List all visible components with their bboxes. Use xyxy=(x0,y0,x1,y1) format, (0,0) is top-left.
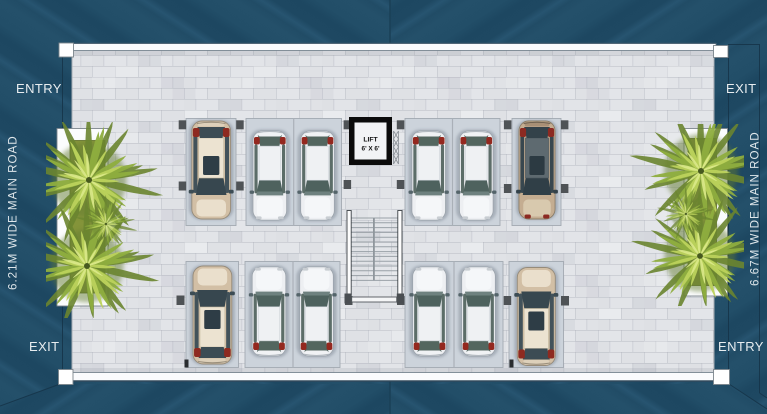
svg-text:ENTRY: ENTRY xyxy=(16,81,62,96)
svg-text:6.21M WIDE MAIN ROAD: 6.21M WIDE MAIN ROAD xyxy=(7,135,20,290)
svg-text:LIFT: LIFT xyxy=(363,137,378,144)
svg-text:6' X 6': 6' X 6' xyxy=(362,146,380,153)
svg-text:EXIT: EXIT xyxy=(29,339,60,354)
svg-text:EXIT: EXIT xyxy=(726,81,757,96)
svg-text:ENTRY: ENTRY xyxy=(718,339,764,354)
svg-text:6.67M WIDE MAIN ROAD: 6.67M WIDE MAIN ROAD xyxy=(749,131,762,286)
